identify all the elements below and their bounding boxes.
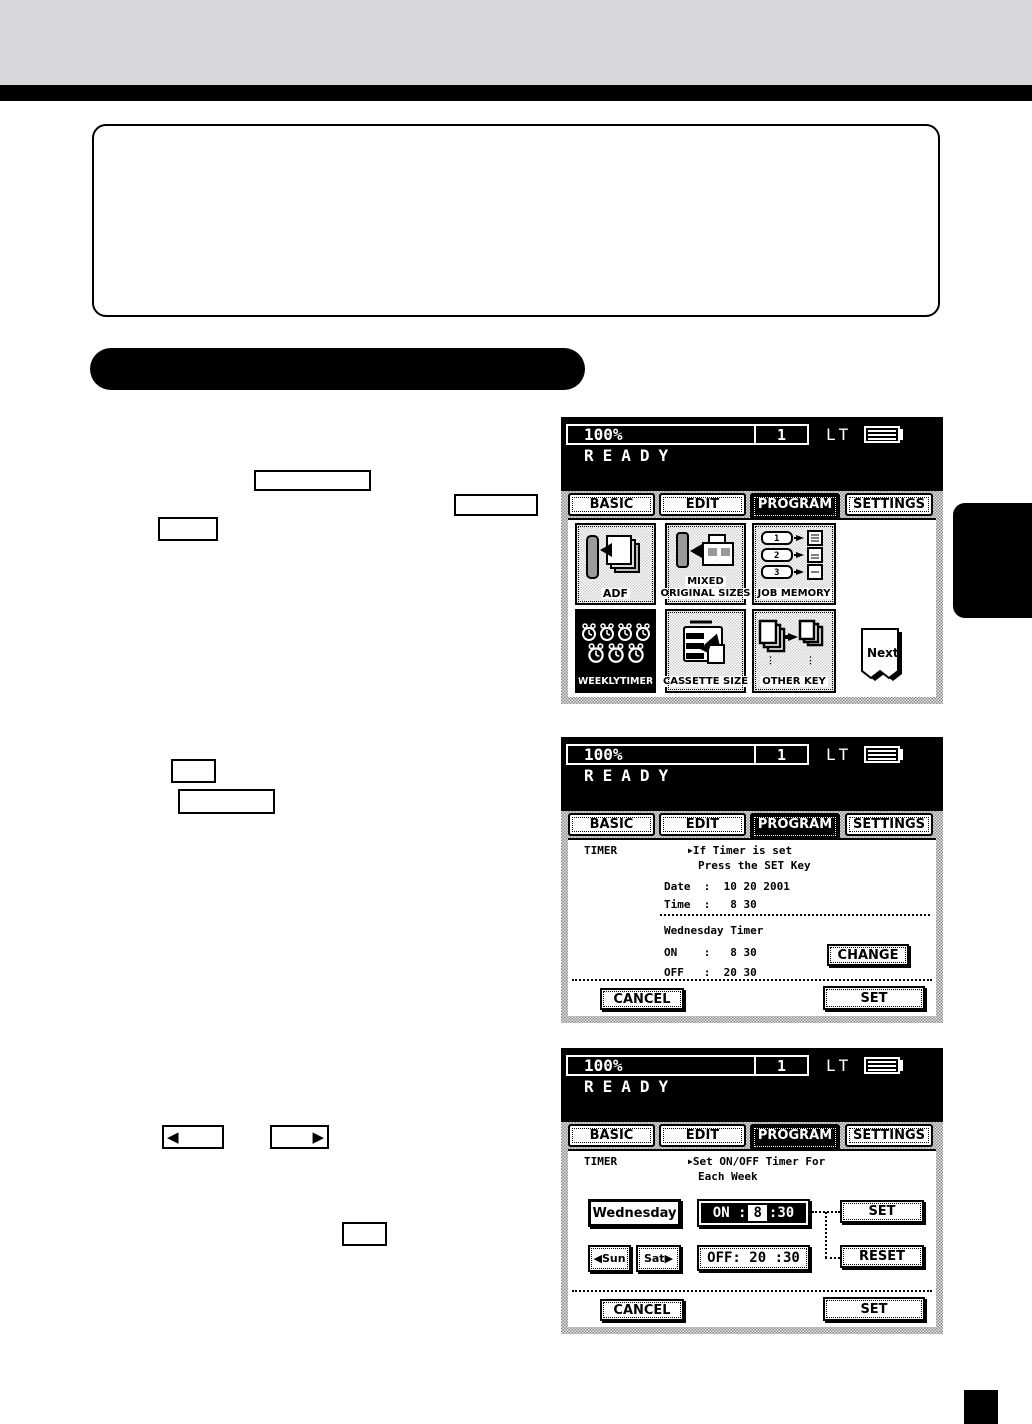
prompt-line1: If Timer is set: [693, 844, 792, 857]
touch-panel-screen-weekly-timer-set: 100% 1 LT READY BASIC EDIT PROGRAM SETTI…: [561, 1048, 943, 1334]
on-label: ON :: [713, 1205, 747, 1221]
day-button[interactable]: Wednesday: [588, 1199, 681, 1227]
svg-text:1: 1: [774, 534, 779, 544]
off-row: OFF : 20 30: [664, 966, 757, 979]
paper-stack-icon: [864, 1057, 904, 1074]
svg-text:⋮: ⋮: [806, 655, 815, 666]
copy-count: 1: [754, 746, 807, 763]
connector-line: [825, 1257, 840, 1259]
page-top-band: [0, 0, 1032, 85]
prompt-line1: Set ON/OFF Timer For: [693, 1155, 825, 1168]
set-time-button[interactable]: SET: [840, 1200, 924, 1223]
on-minute-value: :30: [769, 1205, 794, 1221]
weekly-timer-set-body: TIMER ▶Set ON/OFF Timer For Each Week We…: [568, 1149, 936, 1327]
touch-panel-screen-program-menu: 100% 1 LT READY BASIC EDIT PROGRAM SETTI…: [561, 417, 943, 704]
page-number-block: [964, 1390, 998, 1424]
tab-edit[interactable]: EDIT: [659, 1124, 746, 1147]
paper-size-label: LT: [826, 745, 851, 764]
adf-label: ADF: [601, 588, 630, 599]
program-menu-body: ADF MIXED ORIGINAL SIZES: [568, 518, 936, 697]
left-arrow-key-graphic: ◀: [162, 1125, 224, 1149]
zoom-ratio: 100%: [568, 1056, 623, 1075]
next-day-button[interactable]: Sat▶: [636, 1245, 681, 1272]
chapter-edge-tab: [953, 503, 1032, 618]
panel-area: BASIC EDIT PROGRAM SETTINGS TIMER ▶Set O…: [561, 1122, 943, 1334]
other-key-button[interactable]: ⋮ ⋮ OTHER KEY: [752, 609, 836, 693]
mixed-label-line1: MIXED: [685, 576, 726, 587]
mixed-label-line2: ORIGINAL SIZES: [658, 588, 752, 599]
dotted-separator: [572, 1290, 932, 1292]
tab-settings[interactable]: SETTINGS: [845, 813, 933, 836]
mixed-original-sizes-icon: [667, 525, 744, 576]
next-button[interactable]: Next: [860, 627, 906, 685]
job-memory-button[interactable]: 1 2 3: [752, 523, 836, 605]
svg-text:2: 2: [774, 551, 779, 561]
tab-edit[interactable]: EDIT: [659, 493, 746, 516]
next-ribbon-icon: Next: [860, 627, 906, 685]
zoom-ratio: 100%: [568, 425, 623, 444]
status-bar: 100% 1: [566, 424, 809, 445]
adf-button[interactable]: ADF: [575, 523, 656, 605]
right-arrow-icon: ▶: [665, 1252, 673, 1265]
set-button[interactable]: SET: [823, 1297, 925, 1321]
zoom-ratio: 100%: [568, 745, 623, 764]
cancel-button[interactable]: CANCEL: [600, 1299, 684, 1321]
timer-confirm-body: TIMER ▶If Timer is set Press the SET Key…: [568, 838, 936, 1016]
tab-settings[interactable]: SETTINGS: [845, 493, 933, 516]
dotted-separator: [660, 914, 930, 916]
tab-program[interactable]: PROGRAM: [750, 493, 840, 520]
copy-count: 1: [754, 1057, 807, 1074]
tab-edit[interactable]: EDIT: [659, 813, 746, 836]
date-row: Date : 10 20 2001: [664, 880, 790, 893]
paper-stack-icon: [864, 426, 904, 443]
time-row: Time : 8 30: [664, 898, 757, 911]
job-memory-icon: 1 2 3: [754, 525, 834, 588]
key-placeholder-box: [342, 1222, 387, 1246]
tab-settings[interactable]: SETTINGS: [845, 1124, 933, 1147]
prompt-line2: Press the SET Key: [698, 859, 811, 872]
key-placeholder-box: [254, 470, 371, 491]
connector-line: [825, 1212, 827, 1258]
prompt-line2: Each Week: [698, 1170, 758, 1183]
paper-size-label: LT: [826, 425, 851, 444]
key-placeholder-box: [171, 759, 216, 783]
paper-stack-icon: [864, 746, 904, 763]
page-top-rule: [0, 85, 1032, 101]
status-bar: 100% 1: [566, 744, 809, 765]
tab-basic[interactable]: BASIC: [568, 493, 655, 516]
svg-text:Next: Next: [867, 646, 899, 660]
key-placeholder-box: [178, 789, 275, 814]
on-time-button[interactable]: ON : 8 :30: [697, 1199, 810, 1227]
ready-status: READY: [584, 446, 677, 465]
tab-program[interactable]: PROGRAM: [750, 813, 840, 840]
panel-area: BASIC EDIT PROGRAM SETTINGS ADF: [561, 491, 943, 704]
weekly-timer-clocks-icon: [577, 611, 654, 676]
prev-day-button[interactable]: ◀Sun: [588, 1245, 631, 1272]
cancel-button[interactable]: CANCEL: [600, 988, 684, 1010]
cassette-size-button[interactable]: CASSETTE SIZE: [665, 609, 746, 693]
section-title-bar: [90, 348, 585, 390]
tab-basic[interactable]: BASIC: [568, 1124, 655, 1147]
ready-status: READY: [584, 1077, 677, 1096]
next-day-label: Sat: [644, 1252, 665, 1265]
change-button[interactable]: CHANGE: [827, 944, 909, 966]
copy-count: 1: [754, 426, 807, 443]
on-hour-value: 8: [748, 1205, 766, 1221]
status-bar: 100% 1: [566, 1055, 809, 1076]
other-key-icon: ⋮ ⋮: [754, 611, 834, 676]
left-arrow-icon: ◀: [167, 1128, 179, 1146]
job-memory-label: JOB MEMORY: [756, 588, 833, 599]
reset-button[interactable]: RESET: [840, 1245, 924, 1268]
paper-size-label: LT: [826, 1056, 851, 1075]
off-time-button[interactable]: OFF: 20 :30: [697, 1245, 810, 1271]
weekly-timer-label: WEEKLYTIMER: [576, 676, 656, 687]
other-key-label: OTHER KEY: [760, 676, 828, 687]
cassette-size-label: CASSETTE SIZE: [661, 676, 750, 687]
key-placeholder-box: [158, 517, 218, 541]
set-button[interactable]: SET: [823, 986, 925, 1010]
svg-text:3: 3: [774, 568, 779, 578]
week-timer-title: Wednesday Timer: [664, 924, 763, 937]
dotted-separator: [572, 979, 932, 981]
tab-basic[interactable]: BASIC: [568, 813, 655, 836]
weekly-timer-button[interactable]: WEEKLYTIMER: [575, 609, 656, 693]
right-arrow-key-graphic: ▶: [270, 1125, 329, 1149]
cassette-size-icon: [667, 611, 744, 676]
timer-title: TIMER: [584, 1155, 617, 1168]
svg-text:⋮: ⋮: [766, 655, 775, 666]
left-arrow-icon: ◀: [593, 1252, 601, 1265]
tab-program[interactable]: PROGRAM: [750, 1124, 840, 1151]
note-box: [92, 124, 940, 317]
prev-day-label: Sun: [602, 1252, 626, 1265]
timer-title: TIMER: [584, 844, 617, 857]
on-row: ON : 8 30: [664, 946, 757, 959]
ready-status: READY: [584, 766, 677, 785]
mixed-original-sizes-button[interactable]: MIXED ORIGINAL SIZES: [665, 523, 746, 605]
adf-icon: [577, 525, 654, 588]
panel-area: BASIC EDIT PROGRAM SETTINGS TIMER ▶If Ti…: [561, 811, 943, 1023]
key-placeholder-box: [454, 494, 538, 516]
right-arrow-icon: ▶: [312, 1128, 324, 1146]
touch-panel-screen-timer-confirm: 100% 1 LT READY BASIC EDIT PROGRAM SETTI…: [561, 737, 943, 1023]
